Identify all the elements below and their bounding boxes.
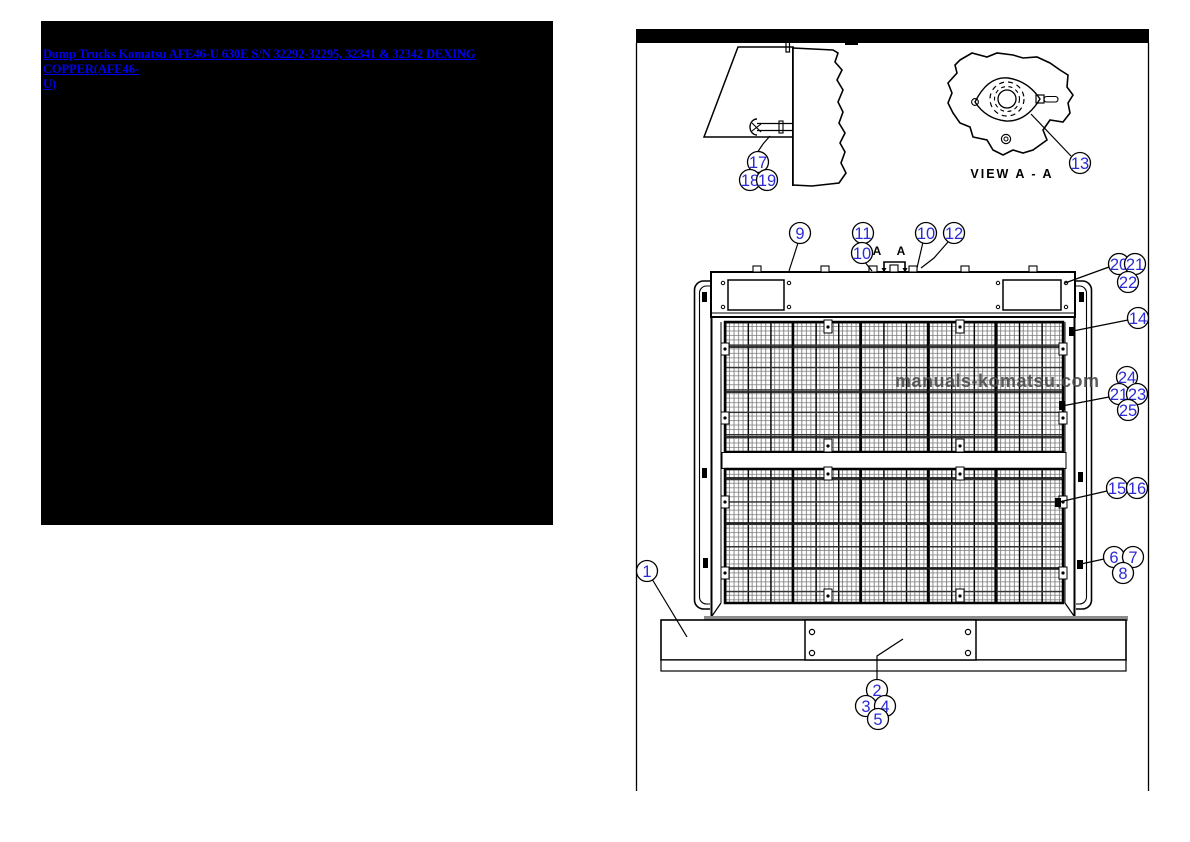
callout-number[interactable]: 8 bbox=[1118, 565, 1127, 583]
callout-8[interactable]: 8 bbox=[1113, 563, 1134, 584]
callout-13[interactable]: 13 bbox=[1070, 153, 1091, 174]
callout-number[interactable]: 25 bbox=[1119, 402, 1137, 420]
callout-25[interactable]: 25 bbox=[1118, 400, 1139, 421]
mesh-divider bbox=[722, 453, 1066, 469]
callout-number[interactable]: 22 bbox=[1119, 274, 1137, 292]
callout-14[interactable]: 14 bbox=[1128, 308, 1149, 329]
section-letter-left: A bbox=[873, 244, 882, 258]
watermark-text: manuals-komatsu.com bbox=[895, 371, 1100, 391]
section-letter-right: A bbox=[897, 244, 906, 258]
callout-number[interactable]: 12 bbox=[945, 225, 963, 243]
callout-number[interactable]: 11 bbox=[854, 225, 871, 243]
callout-number[interactable]: 13 bbox=[1071, 155, 1089, 173]
callout-number[interactable]: 14 bbox=[1129, 310, 1147, 328]
callout-number[interactable]: 9 bbox=[795, 225, 804, 243]
callout-19[interactable]: 19 bbox=[757, 170, 778, 191]
callout-16[interactable]: 16 bbox=[1127, 478, 1148, 499]
torn-edge-piece bbox=[793, 48, 846, 186]
callout-10[interactable]: 10 bbox=[852, 243, 873, 264]
callout-11[interactable]: 11 bbox=[853, 223, 874, 244]
lower-mesh bbox=[725, 469, 1063, 603]
bottom-beam bbox=[661, 616, 1128, 671]
callout-12[interactable]: 12 bbox=[944, 223, 965, 244]
page: { "header_link": { "text": "Dump Trucks … bbox=[0, 0, 1190, 842]
scan-mark bbox=[845, 41, 858, 45]
top-black-bar bbox=[636, 29, 1149, 43]
parts-diagram-panel: VIEW A - A bbox=[0, 0, 1190, 842]
callout-15[interactable]: 15 bbox=[1107, 478, 1128, 499]
view-a-a-label: VIEW A - A bbox=[970, 167, 1053, 181]
callout-number[interactable]: 16 bbox=[1128, 480, 1146, 498]
bracket-bolt-detail bbox=[704, 42, 846, 186]
callout-number[interactable]: 1 bbox=[642, 563, 651, 581]
callout-number[interactable]: 10 bbox=[917, 225, 935, 243]
callout-number[interactable]: 10 bbox=[853, 245, 871, 263]
callout-number[interactable]: 5 bbox=[873, 711, 882, 729]
top-rail-tabs bbox=[753, 265, 1037, 272]
callout-number[interactable]: 19 bbox=[758, 172, 776, 190]
view-a-a-detail bbox=[948, 53, 1073, 155]
grille-assembly bbox=[661, 265, 1128, 671]
beam-center-plate bbox=[805, 620, 976, 660]
callout-10[interactable]: 10 bbox=[916, 223, 937, 244]
callout-5[interactable]: 5 bbox=[868, 709, 889, 730]
callout-number[interactable]: 15 bbox=[1108, 480, 1126, 498]
callout-1[interactable]: 1 bbox=[637, 561, 658, 582]
callout-9[interactable]: 9 bbox=[790, 223, 811, 244]
callout-22[interactable]: 22 bbox=[1118, 272, 1139, 293]
